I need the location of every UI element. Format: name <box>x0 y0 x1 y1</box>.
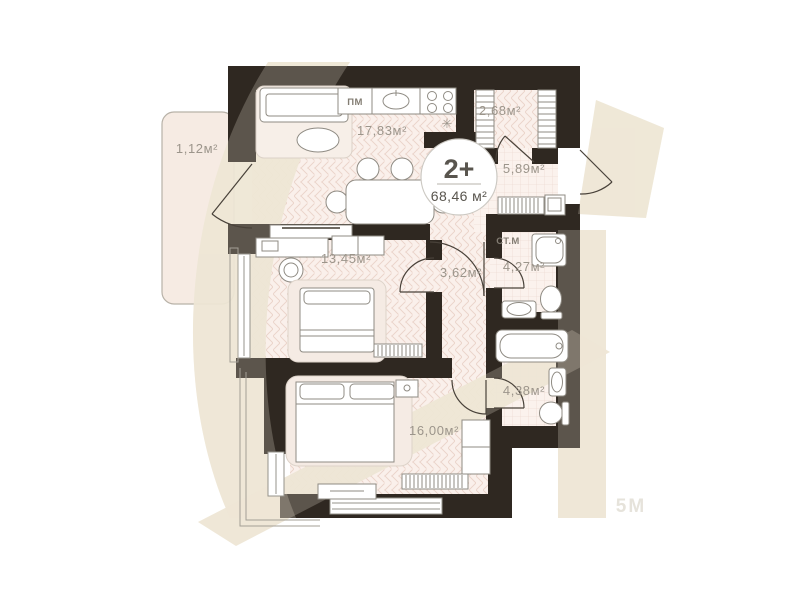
coffee-table <box>297 128 339 152</box>
hallway-furniture <box>498 195 565 215</box>
dishwasher-label: ПМ <box>347 97 363 108</box>
balcony-label: 1,12м² <box>176 141 218 156</box>
bed <box>300 288 374 352</box>
nightstand <box>396 380 418 397</box>
toilet <box>540 402 563 424</box>
double-bed <box>296 382 394 462</box>
living-label: 17,83м² <box>357 123 407 138</box>
washing-machine-label: СТ.М <box>496 236 520 247</box>
fridge-icon: ✳ <box>442 116 453 131</box>
closet-label: 2,68м² <box>479 103 521 118</box>
badge-rooms: 2+ <box>444 154 475 184</box>
doormat <box>498 197 544 214</box>
dining-chair <box>391 158 413 180</box>
badge-area: 68,46 м² <box>431 188 487 204</box>
dining-chair <box>357 158 379 180</box>
corridor-label: 3,62м² <box>440 265 482 280</box>
apartment-badge: 2+ 68,46 м² <box>421 139 497 215</box>
bedroom2-label: 16,00м² <box>409 423 459 438</box>
bedroom2-bottom-window <box>330 498 442 514</box>
dining-table <box>346 180 434 224</box>
floor-plan-page: ПМ ✳ <box>0 0 800 600</box>
brand-text-watermark: 5M <box>616 496 646 517</box>
bathroom2-label: 4,38м² <box>503 383 545 398</box>
toilet <box>541 286 562 312</box>
floor-plan-svg: ПМ ✳ <box>0 0 800 600</box>
bathroom1-label: 4,27м² <box>503 259 545 274</box>
sofa <box>260 88 348 122</box>
bedroom1-label: 13,45м² <box>321 251 371 266</box>
desk-chair <box>279 258 303 282</box>
hallway-label: 5,89м² <box>503 161 545 176</box>
dining-chair <box>326 191 348 213</box>
